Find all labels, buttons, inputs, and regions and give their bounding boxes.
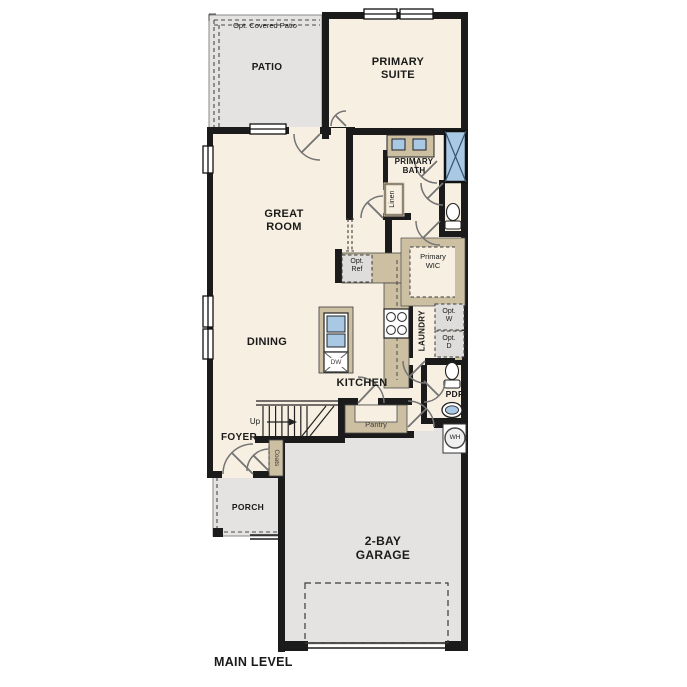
pdr-label: PDR bbox=[441, 389, 469, 399]
wall-greatroom-right bbox=[346, 134, 353, 220]
dishwasher-label: DW bbox=[327, 359, 345, 367]
pantry-label: Pantry bbox=[345, 421, 407, 430]
toilet-icon bbox=[445, 204, 461, 230]
wall-wc-left bbox=[439, 180, 445, 237]
kitchen-label: KITCHEN bbox=[327, 377, 397, 390]
laundry-label: LAUNDRY bbox=[417, 301, 426, 361]
porch-label: PORCH bbox=[222, 502, 274, 512]
wall-wc-bottom bbox=[439, 231, 468, 237]
optional-refrigerator-label: Opt. Ref bbox=[347, 258, 367, 275]
vanity-sink-icon bbox=[392, 139, 405, 150]
primary-suite-label: PRIMARY SUITE bbox=[370, 56, 426, 82]
pdr-sink-icon bbox=[442, 403, 462, 418]
primary-wic-label: Primary WIC bbox=[418, 253, 448, 271]
optional-washer-label: Opt. W bbox=[439, 308, 459, 325]
wall-hall-wic bbox=[385, 220, 392, 258]
wall-ref-stub bbox=[335, 249, 342, 283]
water-heater-label: WH bbox=[447, 434, 463, 442]
foyer-label: FOYER bbox=[214, 432, 264, 444]
floorplan: Opt. Covered Patio PATIO PRIMARY SUITE G… bbox=[0, 0, 687, 687]
wall-patio-suite bbox=[322, 12, 329, 139]
vanity-sink-icon bbox=[413, 139, 426, 150]
wall-pdr-left bbox=[421, 362, 427, 424]
shower-icon bbox=[445, 131, 466, 182]
coats-label: Coats bbox=[272, 440, 280, 476]
dining-label: DINING bbox=[237, 336, 297, 349]
optional-dryer-label: Opt. D bbox=[439, 335, 459, 352]
linen-label: Linen bbox=[389, 181, 397, 217]
wall-suite-bottom bbox=[329, 128, 462, 135]
garage-label: 2-BAY GARAGE bbox=[348, 534, 418, 562]
porch-post bbox=[213, 528, 223, 537]
kitchen-sink-icon bbox=[324, 313, 348, 352]
pdr-toilet-icon bbox=[444, 363, 460, 389]
patio-note-label: Opt. Covered Patio bbox=[215, 22, 315, 31]
patio-label: PATIO bbox=[237, 62, 297, 74]
main-level-title: MAIN LEVEL bbox=[214, 655, 354, 670]
wall-garage-bottom-left bbox=[278, 641, 308, 651]
stairs-up-label: Up bbox=[246, 417, 264, 426]
primary-bath-label: PRIMARY BATH bbox=[393, 157, 435, 176]
floorplan-drawing bbox=[0, 0, 687, 687]
vanity-double-sink bbox=[387, 135, 434, 157]
range-icon bbox=[384, 309, 409, 338]
great-room-label: GREAT ROOM bbox=[256, 208, 312, 234]
